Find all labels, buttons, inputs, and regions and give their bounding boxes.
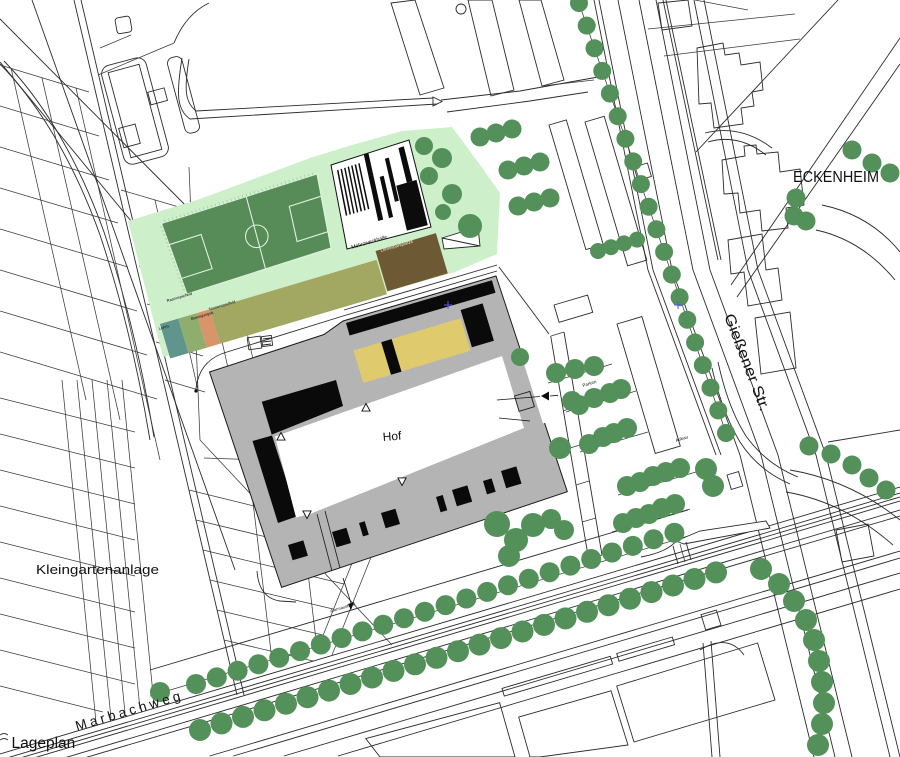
- svg-text:Lageplan: Lageplan: [12, 735, 76, 752]
- svg-text:Hof: Hof: [382, 429, 402, 444]
- svg-text:Kleingartenanlage: Kleingartenanlage: [36, 562, 159, 577]
- svg-text:ECKENHEIM: ECKENHEIM: [793, 169, 879, 186]
